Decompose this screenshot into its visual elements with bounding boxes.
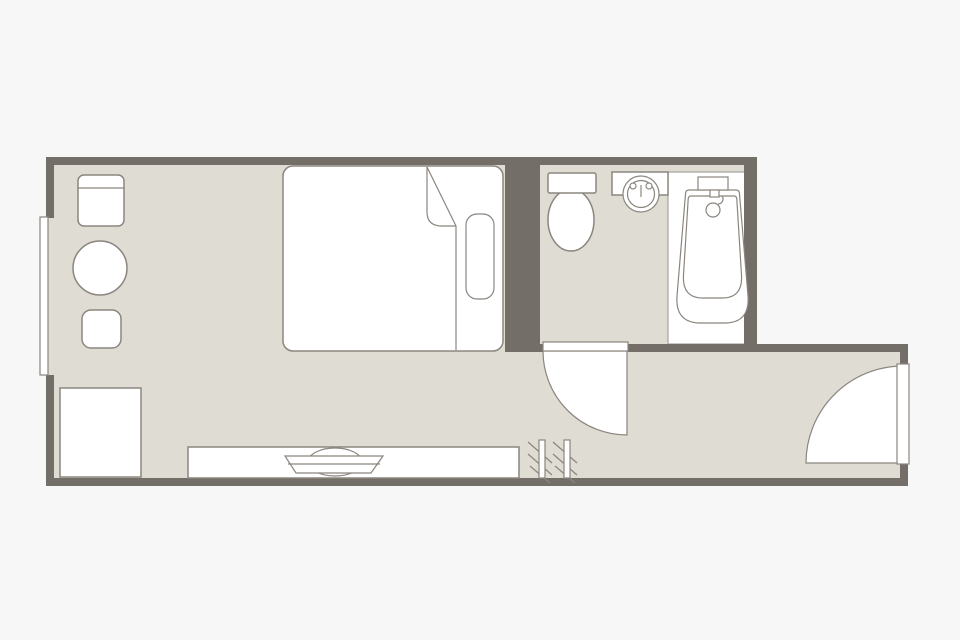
wall-bathroom-bottom xyxy=(505,344,545,352)
hanger-post xyxy=(564,440,570,478)
round-table xyxy=(73,241,127,295)
washbasin-knob-right xyxy=(646,183,652,189)
floor-plan xyxy=(0,0,960,640)
wall-bathroom-right xyxy=(744,157,757,352)
stool xyxy=(82,310,121,348)
window xyxy=(40,217,48,375)
double-bed xyxy=(283,166,503,351)
hanger-post xyxy=(539,440,545,478)
armchair xyxy=(78,175,124,226)
wall-left-upper xyxy=(46,157,54,218)
washbasin-knob-left xyxy=(630,183,636,189)
tv-counter-group xyxy=(188,447,519,478)
armchair-body xyxy=(78,175,124,226)
bathroom-door-leaf xyxy=(543,342,628,351)
wall-corridor-top xyxy=(628,344,908,352)
wall-top xyxy=(46,157,757,165)
wall-bedroom-bathroom xyxy=(505,157,540,352)
toilet-tank xyxy=(548,173,596,193)
pillow xyxy=(466,214,494,299)
bathtub-faucet-stem xyxy=(710,190,719,197)
wall-bottom xyxy=(46,478,908,486)
bathtub xyxy=(677,177,748,323)
bathtub-faucet-plate xyxy=(698,177,728,190)
luggage-rack xyxy=(60,388,141,477)
wall-left-lower xyxy=(46,375,54,486)
toilet-bowl xyxy=(548,189,594,251)
bathtub-drain xyxy=(706,203,720,217)
toilet xyxy=(548,173,596,251)
entrance-door-leaf xyxy=(897,364,909,464)
